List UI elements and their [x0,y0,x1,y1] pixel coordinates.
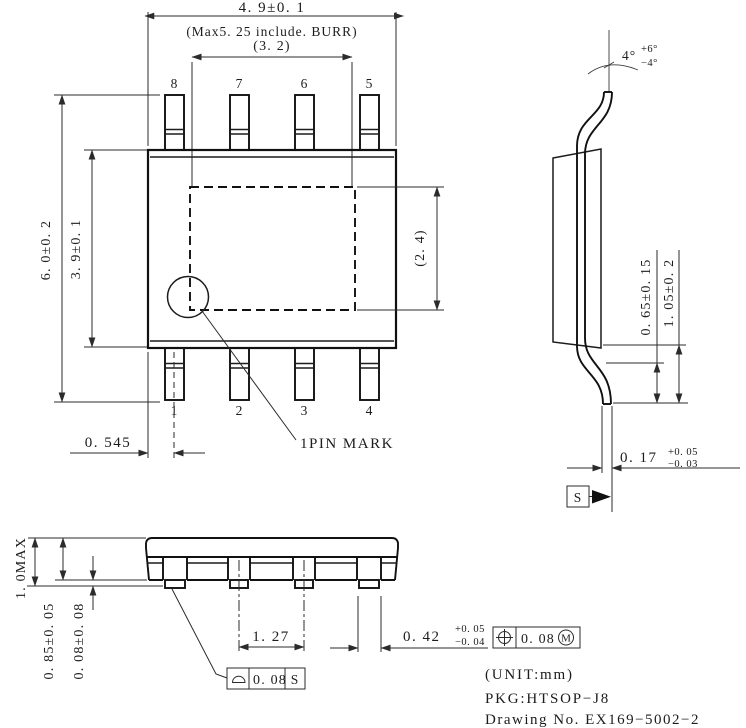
lead-thickness-minus: −0. 03 [668,459,698,470]
front-leads [163,557,381,588]
unit-note: (UNIT:mm) [485,667,574,683]
pin-number-2: 2 [236,403,243,418]
tolerance-seating: 0. 08 [253,673,287,688]
seating-datum: S [574,490,583,505]
dim-width-with-burr: (Max5. 25 include. BURR) [186,24,357,39]
package-body-outline [148,150,396,348]
dim-lead-pitch: 1. 27 [252,629,290,645]
dim-standoff: 0. 08±0. 08 [72,603,87,680]
package-drawing: 4. 9±0. 1 (Max5. 25 include. BURR) (3. 2… [0,0,746,728]
dim-body-width: 4. 9±0. 1 [239,0,306,16]
lead-thickness-plus: +0. 05 [668,447,698,458]
lead-width-plus: +0. 05 [455,624,485,635]
dim-bend-to-seating: 0. 65±0. 15 [639,259,654,336]
dim-pad-height: (2. 4) [413,229,428,267]
front-body-outline [146,538,398,580]
drawing-canvas: 4. 9±0. 1 (Max5. 25 include. BURR) (3. 2… [0,0,746,728]
tolerance-position: 0. 08 [521,632,555,647]
drawing-number: Drawing No. EX169−5002−2 [485,712,700,728]
dim-lead-width: 0. 42 [403,629,441,645]
top-view: 4. 9±0. 1 (Max5. 25 include. BURR) (3. 2… [39,0,444,462]
tolerance-position-modifier: M [561,633,571,645]
pin-number-5: 5 [366,76,373,91]
pin-number-7: 7 [236,76,243,91]
position-symbol-icon [496,629,513,646]
exposed-pad-outline [190,187,355,310]
fcf-seating-leader [172,589,227,678]
pin-number-4: 4 [366,403,373,418]
datum-triangle-icon [592,490,611,504]
notes-block: (UNIT:mm) PKG:HTSOP−J8 Drawing No. EX169… [485,667,700,728]
lead-angle-minus: −4° [641,58,658,69]
dim-body-to-seating: 1. 05±0. 2 [662,259,677,328]
side-view: 4° +6° −4° 0. 65±0. 15 1. 05±0. 2 0. 17 … [553,30,740,512]
lead-angle: 4° [622,48,636,63]
dim-overall-height-front: 1. 0MAX [14,537,29,599]
lead-angle-plus: +6° [641,44,658,55]
dim-lead-thickness: 0. 17 [620,450,658,466]
dim-body-height: 3. 9±0. 1 [69,219,84,279]
pin-number-6: 6 [301,76,308,91]
bottom-leads [165,348,379,400]
tolerance-seating-datum: S [291,672,300,687]
lead-width-minus: −0. 04 [455,637,485,648]
dim-pin1-offset: 0. 545 [85,435,132,451]
seating-plane-symbol-icon [233,676,246,682]
dim-overall-height: 6. 0±0. 2 [39,220,54,280]
pin-number-3: 3 [301,403,308,418]
angle-arc [588,65,638,74]
dim-pad-width: (3. 2) [253,39,291,54]
package-name: PKG:HTSOP−J8 [485,691,610,707]
pin1-mark-label: 1PIN MARK [300,436,394,452]
pin1-mark-leader [202,311,296,440]
fcf-position: 0. 08 M [493,627,580,648]
side-lead-inner [585,92,612,404]
top-leads [165,95,379,150]
dim-body-thickness: 0. 85±0. 05 [42,603,57,680]
pin-number-8: 8 [171,76,178,91]
